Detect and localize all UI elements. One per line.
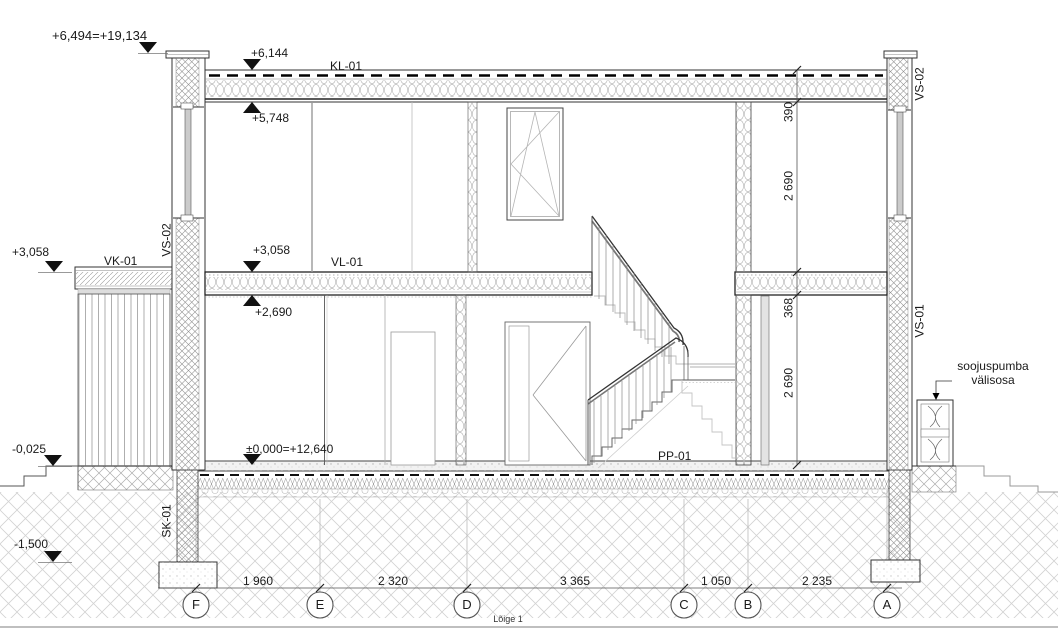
heat-pump-unit [917, 381, 953, 466]
upper-window [507, 108, 563, 220]
grid-bubble-c: C [679, 598, 688, 612]
tag-ground-slab: PP-01 [658, 450, 691, 463]
level-second-floor: +3,058 [253, 244, 290, 257]
grid-bubble-b: B [744, 598, 753, 612]
tag-plinth: SK-01 [161, 504, 174, 537]
tag-intermediate-floor: VL-01 [331, 256, 363, 269]
level-second-floor-exterior: +3,058 [12, 246, 49, 259]
grid-bubble-e: E [316, 598, 325, 612]
canopy [75, 267, 173, 466]
grid-bubble-f: F [192, 598, 200, 612]
grid-spacing-b-a: 2 235 [802, 575, 832, 588]
right-wall-window [897, 112, 903, 216]
tag-wall-upper-right: VS-02 [914, 67, 927, 100]
heat-pump-note: soojuspumba välisosa [948, 360, 1038, 388]
roof-slab [205, 70, 887, 102]
vertical-dim-2690-upper: 2 690 [783, 171, 796, 201]
tag-canopy: VK-01 [104, 255, 137, 268]
stair-door [505, 322, 590, 465]
intermediate-floor [205, 272, 887, 297]
level-ground-floor: ±0,000=+12,640 [246, 443, 333, 456]
tag-wall-lower-right: VS-01 [914, 304, 927, 337]
vertical-dim-368: 368 [783, 298, 796, 318]
level-footing: -1,500 [14, 538, 48, 551]
left-wall-window [185, 109, 191, 216]
left-terrace-steps [0, 466, 173, 490]
level-roof-soffit: +5,748 [252, 112, 289, 125]
grid-bubble-d: D [462, 598, 471, 612]
level-parapet: +6,494=+19,134 [52, 29, 147, 43]
level-first-ceiling: +2,690 [255, 306, 292, 319]
left-exterior-wall [166, 51, 209, 470]
door-opening [391, 332, 435, 465]
section-drawing-sheet: +6,494=+19,134 +6,144 KL-01 +5,748 +3,05… [0, 0, 1058, 632]
right-exterior-wall [884, 51, 917, 470]
grid-spacing-f-e: 1 960 [243, 575, 273, 588]
level-terrace: -0,025 [12, 443, 46, 456]
vertical-dim-2690-lower: 2 690 [783, 368, 796, 398]
grid-bubble-a: A [883, 598, 892, 612]
grid-spacing-d-c: 3 365 [560, 575, 590, 588]
grid-spacing-c-b: 1 050 [701, 575, 731, 588]
staircase [588, 216, 735, 468]
ground-slab [198, 461, 889, 497]
tag-roof: KL-01 [330, 60, 362, 73]
tag-wall-upper-left: VS-02 [161, 223, 174, 256]
grid-spacing-e-d: 2 320 [378, 575, 408, 588]
right-plinth-steps [912, 466, 1058, 492]
level-roof-top: +6,144 [251, 47, 288, 60]
section-linework [0, 0, 1058, 632]
heat-pump-note-line2: välisosa [971, 373, 1014, 387]
drawing-title: Lõige 1 [493, 615, 523, 624]
vertical-dim-390: 390 [783, 102, 796, 122]
vertical-dimension-chain [793, 66, 801, 469]
heat-pump-note-line1: soojuspumba [957, 359, 1028, 373]
